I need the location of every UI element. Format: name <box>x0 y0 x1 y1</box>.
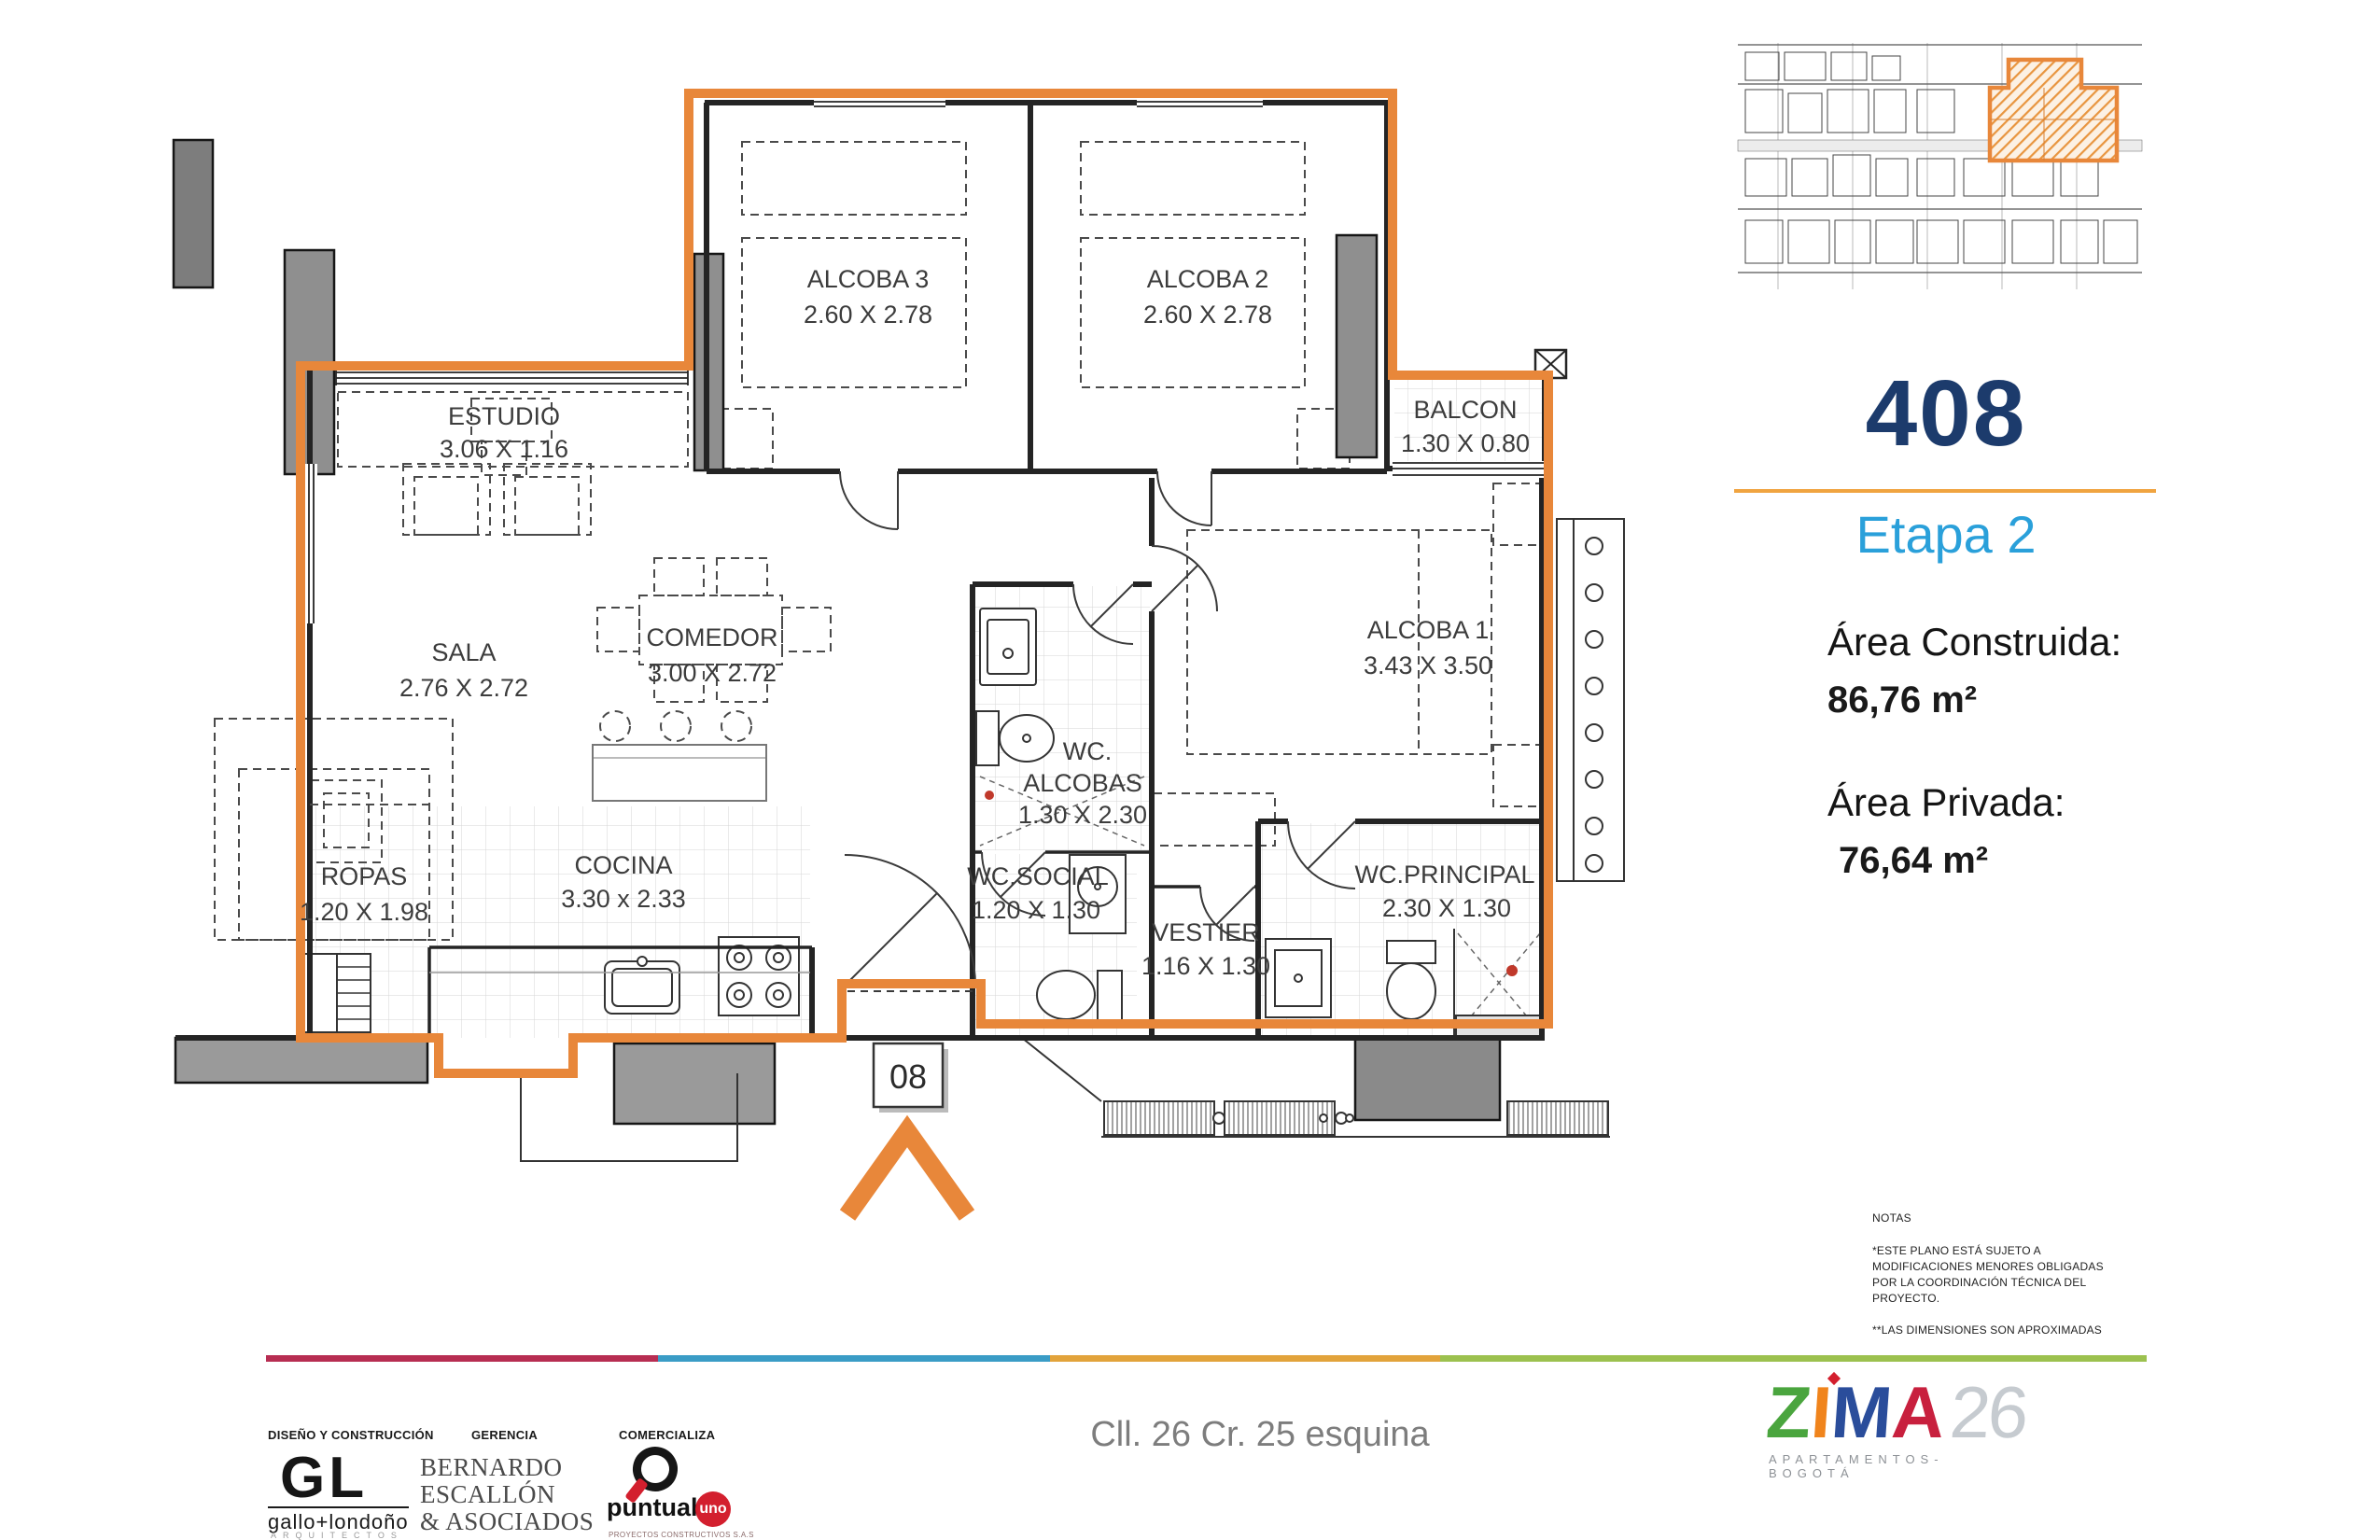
design-role-label: DISEÑO Y CONSTRUCCIÓN <box>268 1428 434 1442</box>
zima26-logo: ZIMA26 <box>1764 1370 2029 1455</box>
label-wc-alcobas: WC. <box>1063 737 1112 765</box>
dims-estudio: 3.06 X 1.16 <box>440 435 568 463</box>
notes-title: NOTAS <box>1872 1211 1911 1225</box>
label-balcon: BALCON <box>1413 396 1517 424</box>
dims-vestier: 1.16 X 1.30 <box>1141 952 1270 980</box>
label-ropas: ROPAS <box>321 862 408 890</box>
footer-bar-amber <box>1050 1355 1440 1362</box>
dims-alcoba1: 3.43 X 3.50 <box>1364 651 1492 679</box>
dims-wc-principal: 2.30 X 1.30 <box>1382 894 1511 922</box>
label-wc-alcobas-2: ALCOBAS <box>1023 769 1142 797</box>
label-wc-social: WC.SOCIAL <box>967 862 1109 890</box>
gl-logo: GL <box>280 1445 368 1511</box>
dims-ropas: 1.20 X 1.98 <box>300 898 428 926</box>
area-privada-label: Área Privada: <box>1827 780 2065 825</box>
zima-tagline: APARTAMENTOS-BOGOTÁ <box>1769 1452 2021 1480</box>
tiled-floors <box>312 377 1543 1038</box>
floor-plan: ESTUDIO 3.06 X 1.16 ALCOBA 3 2.60 X 2.78… <box>0 0 2380 1540</box>
footer-bar-green <box>1440 1355 2147 1362</box>
dims-alcoba3: 2.60 X 2.78 <box>804 301 932 329</box>
label-alcoba2: ALCOBA 2 <box>1147 265 1269 293</box>
gl-logo-sub2: ARQUITECTOS <box>271 1531 403 1540</box>
puntual-logo: puntual <box>607 1493 697 1522</box>
dims-sala: 2.76 X 2.72 <box>399 674 528 702</box>
zima-letter-a: A <box>1889 1370 1948 1455</box>
dims-alcoba2: 2.60 X 2.78 <box>1143 301 1272 329</box>
dims-comedor: 3.00 X 2.72 <box>648 659 777 687</box>
notes-body: *ESTE PLANO ESTÁ SUJETO A MODIFICACIONES… <box>1872 1243 2106 1307</box>
puntual-logo-sub: PROYECTOS CONSTRUCTIVOS S.A.S <box>609 1531 754 1539</box>
footer-bar-red <box>266 1355 658 1362</box>
zima-letter-m: M <box>1828 1370 1895 1455</box>
label-vestier: VESTIER <box>1152 918 1260 946</box>
zima-number: 26 <box>1947 1370 2028 1455</box>
notes-footnote: **LAS DIMENSIONES SON APROXIMADAS <box>1872 1323 2115 1337</box>
comercializa-role-label: COMERCIALIZA <box>619 1428 715 1442</box>
etapa-label: Etapa 2 <box>1731 504 2161 565</box>
project-address: Cll. 26 Cr. 25 esquina <box>933 1415 1587 1455</box>
bernardo-escallon-logo: BERNARDO ESCALLÓN & ASOCIADOS <box>420 1454 597 1535</box>
key-plan-unit-highlight <box>1990 60 2117 161</box>
kitchen-island <box>593 745 766 801</box>
key-plan <box>1738 43 2142 289</box>
puntual-uno-badge: uno <box>695 1491 731 1527</box>
label-cocina: COCINA <box>574 851 672 879</box>
label-sala: SALA <box>431 638 496 666</box>
entry-unit-tag: 08 <box>889 1057 927 1096</box>
area-construida-label: Área Construida: <box>1827 620 2121 665</box>
dims-balcon: 1.30 X 0.80 <box>1401 429 1530 457</box>
gerencia-role-label: GERENCIA <box>471 1428 538 1442</box>
area-construida-value: 86,76 m² <box>1827 679 1977 721</box>
gold-rule <box>1734 489 2156 493</box>
dims-wc-alcobas: 1.30 X 2.30 <box>1018 801 1147 829</box>
entry-arrow-icon <box>847 1131 967 1215</box>
label-wc-principal: WC.PRINCIPAL <box>1354 861 1534 889</box>
unit-number: 408 <box>1731 360 2161 468</box>
zima-letter-z: Z <box>1764 1370 1814 1455</box>
label-estudio: ESTUDIO <box>448 402 560 430</box>
area-privada-value: 76,64 m² <box>1839 840 1988 882</box>
footer-bar-blue <box>658 1355 1050 1362</box>
dims-cocina: 3.30 x 2.33 <box>561 885 686 913</box>
label-alcoba1: ALCOBA 1 <box>1367 616 1490 644</box>
dims-wc-social: 1.20 X 1.30 <box>972 896 1100 924</box>
label-alcoba3: ALCOBA 3 <box>807 265 930 293</box>
label-comedor: COMEDOR <box>647 623 778 651</box>
